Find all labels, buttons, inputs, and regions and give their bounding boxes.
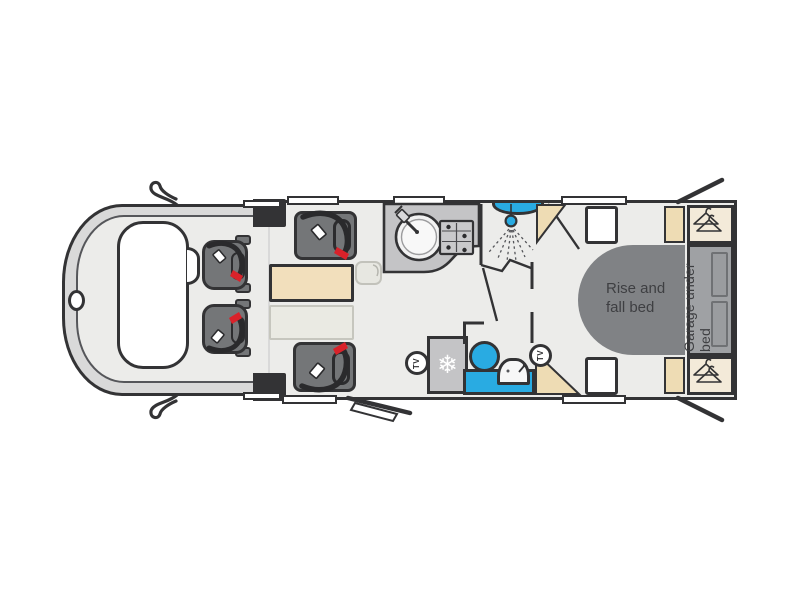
tv-label: TV [536,350,545,361]
seatbelt-icon-travel-bottom [302,342,348,390]
shelf-handle [373,265,378,276]
shower-spray-icon [489,229,533,261]
seatbelt-icon-cab-bottom [209,312,242,351]
seatbelt-icon-cab-top [209,243,243,282]
bed-label: Rise and fall bed [606,279,686,317]
wing-mirror-top-icon [151,182,177,205]
shower-head-icon [506,204,517,226]
tv-point-front: TV [405,351,429,375]
hanger-icon-top [694,208,721,231]
garage-label: Garage under bed [685,246,709,352]
hanger-icon-bottom [694,359,721,382]
motorhome-floorplan: ❄ [0,0,800,600]
hob-icon [440,221,473,254]
entry-door [348,398,410,421]
tv-point-rear: TV [529,344,552,367]
seatbelt-icon-travel-top [303,213,349,260]
garage-door-marker-top [678,180,722,202]
basin-tap-icon [507,364,527,373]
wing-mirror-bottom-icon [151,395,177,418]
garage-door-marker-bottom [678,398,722,420]
tv-label: TV [412,357,421,368]
washroom-walls [463,204,579,344]
